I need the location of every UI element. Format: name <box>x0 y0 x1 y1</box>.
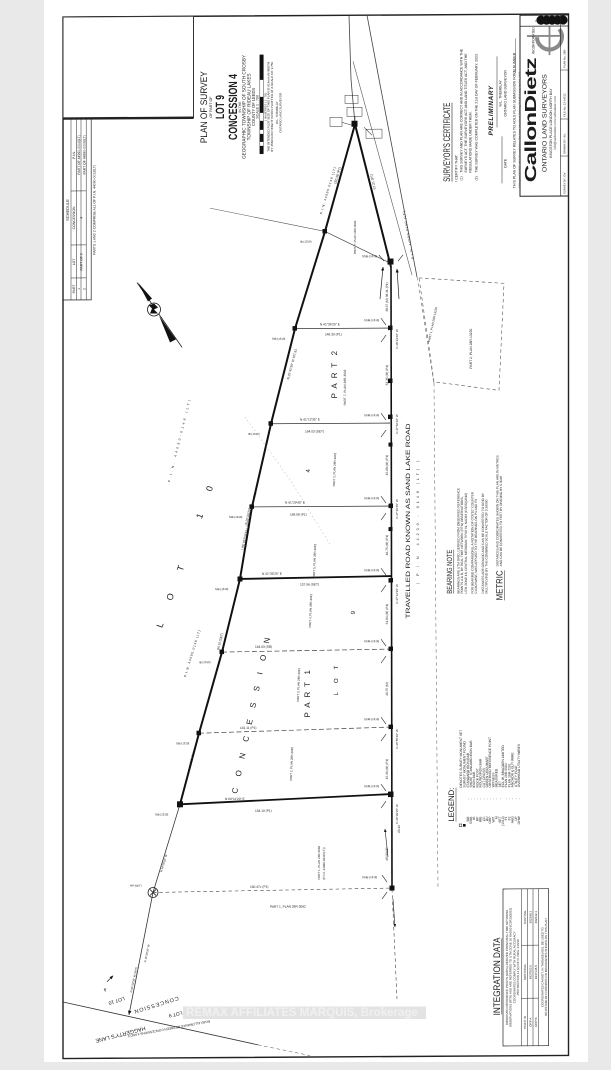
svg-text:I CERTIFY THAT:: I CERTIFY THAT: <box>455 154 459 181</box>
svg-text:AND CAN BE CONVERTED TO FEET B: AND CAN BE CONVERTED TO FEET BY DIVIDING… <box>499 476 503 567</box>
svg-text:PART 1, PLAN 28R-3092: PART 1, PLAN 28R-3092 <box>317 845 321 879</box>
svg-text:( P.I.N. 44230 - 0149 (LT) ): ( P.I.N. 44230 - 0149 (LT) ) <box>416 458 420 584</box>
svg-text:PART 7, PLAN 28R-3092: PART 7, PLAN 28R-3092 <box>343 369 347 405</box>
svg-text:RP (WIT): RP (WIT) <box>130 884 142 888</box>
svg-text:FILE No: 23-14512: FILE No: 23-14512 <box>563 93 567 117</box>
svg-text:info@callondietz.com ca: info@callondietz.com callondietz.com <box>553 96 557 150</box>
svg-text:IN THE: IN THE <box>238 101 242 113</box>
svg-text:RE-ESTABLISH CORNERS OR BOUNDA: RE-ESTABLISH CORNERS OR BOUNDARIES SHOWN… <box>544 918 548 1015</box>
svg-text:SSIB (1319): SSIB (1319) <box>364 496 379 500</box>
svg-text:PRELIMINARY: PRELIMINARY <box>488 85 495 135</box>
svg-text:CAUTION: CAUTION <box>535 19 547 23</box>
svg-text:SSIB (1319): SSIB (1319) <box>364 568 379 572</box>
svg-text:P.I.N.: P.I.N. <box>72 151 76 159</box>
svg-text:N 47°52'10" W: N 47°52'10" W <box>395 414 399 434</box>
svg-text:CallonDietz: CallonDietz <box>523 57 540 182</box>
svg-text:N 41°36'25" E: N 41°36'25" E <box>262 572 282 576</box>
svg-text:N 41°12'35" E: N 41°12'35" E <box>300 417 320 421</box>
svg-text:ONTARIO LAND SURVEYOR: ONTARIO LAND SURVEYOR <box>279 92 283 133</box>
svg-text:SURVEYOR'S CERTIFICATE: SURVEYOR'S CERTIFICATE <box>442 103 453 182</box>
svg-text:1: 1 <box>303 670 312 675</box>
svg-text:SSIB (1319): SSIB (1319) <box>364 784 379 788</box>
svg-text:IB (1319): IB (1319) <box>300 240 312 244</box>
svg-text:146.33 (P1): 146.33 (P1) <box>325 332 342 336</box>
svg-text:4: 4 <box>80 217 84 219</box>
svg-text:PART OF 44990-0009(LT): PART OF 44990-0009(LT) <box>82 135 86 174</box>
svg-text:392388.3: 392388.3 <box>529 911 533 924</box>
svg-text:N 47°12'30" W: N 47°12'30" W <box>395 584 399 604</box>
svg-text:53.35 (M) (P1): 53.35 (M) (P1) <box>385 365 389 386</box>
svg-text:392642.1: 392642.1 <box>534 911 538 924</box>
svg-text:PART 1, PLAN 28R-3092: PART 1, PLAN 28R-3092 <box>270 905 306 909</box>
svg-text:TRAVELLED ROAD KNOWN AS: TRAVELLED ROAD KNOWN AS SAND LAKE ROAD <box>405 423 412 619</box>
svg-text:CONCESSION: CONCESSION <box>72 206 76 229</box>
svg-text:BY 458mm IN HEIGHT WHEN PLOTTE: BY 458mm IN HEIGHT WHEN PLOTTED AT A SCA… <box>270 61 274 151</box>
svg-text:BEARING NOTE: BEARING NOTE <box>445 550 454 594</box>
svg-text:NORTHING: NORTHING <box>523 964 527 981</box>
svg-text:LEGEND:: LEGEND: <box>447 788 456 822</box>
svg-text:OHW: OHW <box>517 815 521 824</box>
svg-text:IB (1319): IB (1319) <box>248 432 260 436</box>
svg-text:4937145.5: 4937145.5 <box>534 965 538 980</box>
svg-text:2: 2 <box>82 288 86 290</box>
svg-text:N 41°29'40" E: N 41°29'40" E <box>285 501 305 505</box>
svg-text:51.84 (M) (P1): 51.84 (M) (P1) <box>385 604 389 625</box>
svg-text:N 41°35'25" E: N 41°35'25" E <box>320 322 340 326</box>
svg-text:PART: PART <box>330 358 339 399</box>
svg-text:SIB (1319): SIB (1319) <box>272 337 285 341</box>
svg-text:SIB (1319): SIB (1319) <box>215 587 228 591</box>
svg-text:N 47°40'35" W: N 47°40'35" W <box>395 499 399 519</box>
svg-text:POINT ID: POINT ID <box>523 1015 527 1029</box>
svg-text:PER SECTION 14 (2) OF O. RE: PER SECTION 14 (2) OF O. REG. 216/10 <box>516 939 520 996</box>
svg-text:-: - <box>517 798 521 799</box>
svg-text:45.30 (M) (P1): 45.30 (M) (P1) <box>385 759 389 780</box>
svg-text:METRIC: METRIC <box>495 570 505 600</box>
svg-text:SCALE 1 : 750: SCALE 1 : 750 <box>256 95 260 119</box>
svg-text:CLOCKWISE, WAS APPLIED TO THE: CLOCKWISE, WAS APPLIED TO THE BEARINGS O… <box>474 499 478 594</box>
svg-text:UTM ZONE 18, CENTRAL MERIDIAN: UTM ZONE 18, CENTRAL MERIDIAN 75°00' W, … <box>464 493 468 594</box>
svg-text:LOT 9: LOT 9 <box>213 95 227 119</box>
svg-text:SURVEY BY: GV: SURVEY BY: GV <box>563 173 567 195</box>
svg-text:DRAWN BY: WL: DRAWN BY: WL <box>563 133 567 154</box>
svg-text:OVERHEAD UTILITY WIRES: OVERHEAD UTILITY WIRES <box>517 743 521 787</box>
svg-text:(P.I.N. 44090-0239 (LT)): (P.I.N. 44090-0239 (LT)) <box>322 847 326 879</box>
svg-text:INTEGRATION DATA: INTEGRATION DATA <box>492 937 503 1016</box>
svg-text:N 46°55'40" W: N 46°55'40" W <box>395 729 399 749</box>
svg-text:38.37 (M) 38.31 (P1): 38.37 (M) 38.31 (P1) <box>385 282 389 311</box>
svg-text:N 60°11'20" E: N 60°11'20" E <box>225 797 245 801</box>
svg-text:SIB (1319): SIB (1319) <box>155 812 168 816</box>
svg-text:PART: PART <box>72 285 76 294</box>
svg-text:(1): (1) <box>460 176 464 180</box>
svg-text:N 48°23'40" W: N 48°23'40" W <box>395 329 399 349</box>
svg-text:ORP A: ORP A <box>529 1018 533 1027</box>
svg-text:EASTING: EASTING <box>523 910 527 924</box>
svg-text:THIS PLAN OF SURVEY RELATES TO: THIS PLAN OF SURVEY RELATES TO AOLS PLAN… <box>513 52 517 188</box>
svg-text:PART: PART <box>303 677 312 718</box>
svg-text:REMAX AFFILIATES MARQUIS, Brok: REMAX AFFILIATES MARQUIS, Brokerage <box>186 1005 418 1019</box>
svg-text:PART 7, PLAN 28R-3092: PART 7, PLAN 28R-3092 <box>353 220 357 254</box>
svg-text:SIB (1319): SIB (1319) <box>176 741 189 745</box>
svg-text:45.08 (M) (P1): 45.08 (M) (P1) <box>385 455 389 476</box>
svg-text:PART OF 44990-0013(LT): PART OF 44990-0013(LT) <box>77 135 81 174</box>
svg-text:SCHEDULE: SCHEDULE <box>65 199 70 221</box>
svg-text:LOT: LOT <box>72 259 76 266</box>
svg-text:INCORPORATED: INCORPORATED <box>532 27 536 55</box>
svg-text:-: - <box>498 798 502 799</box>
svg-text:1: 1 <box>77 288 81 290</box>
svg-text:40.75 (M): 40.75 (M) <box>385 682 389 696</box>
svg-text:148.08 (P1): 148.08 (P1) <box>290 513 307 517</box>
svg-text:PARTS 1 AND 2 COMPRISE ALL OF: PARTS 1 AND 2 COMPRISE ALL OF P.I.N. 440… <box>93 165 97 255</box>
svg-text:137.96 (SET): 137.96 (SET) <box>300 582 319 586</box>
svg-text:SIB (1319): SIB (1319) <box>229 515 242 519</box>
svg-text:20.12: 20.12 <box>397 825 401 833</box>
svg-text:SSIB (1319): SSIB (1319) <box>362 875 377 879</box>
svg-text:THIS SURVEY AND PLAN ARE: THIS SURVEY AND PLAN ARE CORRECT AND IN … <box>460 48 464 173</box>
svg-text:PART OF 9: PART OF 9 <box>80 253 84 270</box>
svg-text:ONTARIO LAND SURVEYORS: ONTARIO LAND SURVEYORS <box>542 74 549 172</box>
svg-text:SSIB (1319): SSIB (1319) <box>362 254 377 258</box>
svg-text:164.03 (SET): 164.03 (SET) <box>305 429 324 433</box>
svg-text:(2): (2) <box>475 176 479 180</box>
svg-text:LOT: LOT <box>334 657 340 696</box>
svg-text:160.47± (P1): 160.47± (P1) <box>250 885 268 889</box>
svg-text:REGULATIONS MADE UNDER THEM: REGULATIONS MADE UNDER THEM. <box>469 111 473 172</box>
svg-text:W.L. TREMBLAY: W.L. TREMBLAY <box>499 79 503 106</box>
svg-text:IB (1319): IB (1319) <box>199 660 211 664</box>
svg-text:SSIB (1319): SSIB (1319) <box>364 717 379 721</box>
svg-text:46.75 (M) (P1): 46.75 (M) (P1) <box>385 535 389 556</box>
svg-text:45°30'05": 45°30'05" <box>385 847 389 861</box>
svg-text:SSIB (1319): SSIB (1319) <box>364 318 379 322</box>
svg-text:PART 2, PLAN 28R-13235: PART 2, PLAN 28R-13235 <box>469 328 473 368</box>
svg-text:134.19 (P1): 134.19 (P1) <box>255 809 272 813</box>
svg-text:PLAN No: 28R-: PLAN No: 28R- <box>563 49 567 68</box>
svg-text:ONTARIO LAND SURVEYOR: ONTARIO LAND SURVEYOR <box>504 70 508 117</box>
svg-text:4937503.5: 4937503.5 <box>529 965 533 980</box>
svg-text:SURVEYS ACT, THE SURVEYORS: SURVEYS ACT, THE SURVEYORS ACT AND LAND … <box>464 53 468 173</box>
svg-text:MULTIPLYING BY THE COMBINED SC: MULTIPLYING BY THE COMBINED SCALE FACTOR… <box>485 499 489 593</box>
svg-text:SSIB (1319): SSIB (1319) <box>364 413 379 417</box>
svg-text:DATE: DATE <box>504 158 508 168</box>
svg-text:2: 2 <box>330 350 339 355</box>
svg-text:N 46°30'25" W: N 46°30'25" W <box>395 804 399 824</box>
svg-text:THE SURVEY WAS COMPLETED O: THE SURVEY WAS COMPLETED ON THE 21st DAY… <box>475 53 479 172</box>
svg-text:SSIB (1319): SSIB (1319) <box>364 639 379 643</box>
svg-text:ORP B: ORP B <box>534 1018 538 1027</box>
